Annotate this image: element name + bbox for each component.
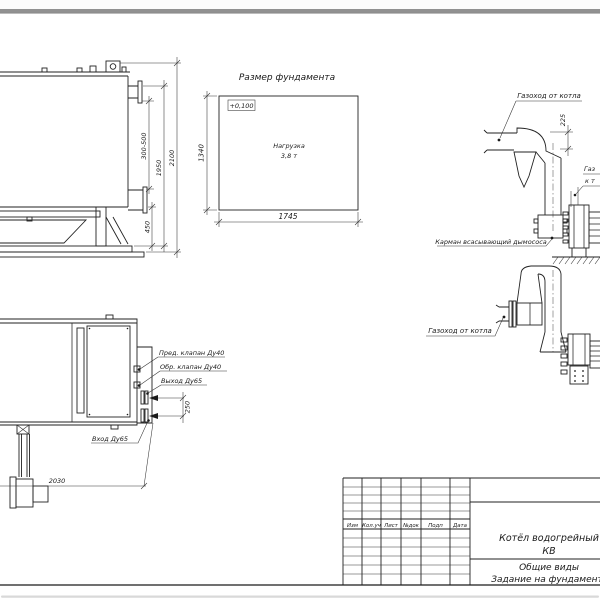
duct-from-boiler-label: Газоход от котла [517, 92, 581, 100]
task-title: Задание на фундамент [491, 575, 600, 585]
duct-to-stack-label-line2: к т [585, 177, 595, 185]
header-koluch: Кол.уч [362, 523, 381, 529]
outlet-label: Выход Ду65 [161, 377, 202, 385]
duct-from-boiler-label-plan: Газоход от котла [428, 327, 492, 335]
viewer-top-strip [0, 0, 600, 9]
doc-title-line2: КВ [542, 546, 555, 557]
check-valve-label: Обр. клапан Ду40 [160, 363, 221, 371]
load-label-line1: Нагрузка [273, 142, 305, 150]
engineering-drawing-sheet: 300-500 450 1950 2100 Размер фундамента … [0, 0, 600, 600]
leader-dot [551, 237, 554, 240]
leader-dot [574, 194, 577, 197]
dim-length: 2030 [49, 477, 66, 485]
dim-ports: 250 [184, 401, 192, 413]
header-izm: Изм [347, 523, 358, 529]
dim-height-total: 2100 [168, 150, 176, 167]
leader-dot [498, 139, 501, 142]
suction-pocket-label: Карман всасывающий дымососа [435, 238, 547, 246]
header-podp: Подп [428, 523, 443, 529]
header-data: Дата [452, 523, 467, 529]
dim-height-flange: 1950 [155, 160, 163, 177]
safety-valve-label: Пред. клапан Ду40 [159, 349, 224, 357]
doc-title-line1: Котёл водогрейный [499, 533, 599, 544]
leader-dot [503, 316, 506, 319]
dim-foundation-width: 1745 [278, 212, 297, 221]
viewer-bottom-edge [1, 596, 599, 598]
inlet-label: Вход Ду65 [92, 435, 128, 443]
view-title: Общие виды [519, 563, 579, 573]
dim-duct: 225 [559, 114, 567, 126]
dim-flange-range: 300-500 [140, 132, 148, 159]
header-list: Лист [383, 523, 399, 529]
duct-to-stack-label-line1: Газ [584, 165, 596, 173]
dim-foundation-height: 1340 [198, 144, 206, 162]
paper [0, 0, 600, 600]
dim-base: 450 [144, 221, 152, 233]
viewer-top-edge [0, 9, 600, 13]
foundation-title: Размер фундамента [239, 73, 335, 83]
level-mark: +0,100 [229, 102, 253, 110]
load-label-line2: 3,8 т [281, 152, 297, 160]
header-ndok: №док [402, 523, 420, 529]
drawing-viewer: 300-500 450 1950 2100 Размер фундамента … [0, 0, 600, 600]
